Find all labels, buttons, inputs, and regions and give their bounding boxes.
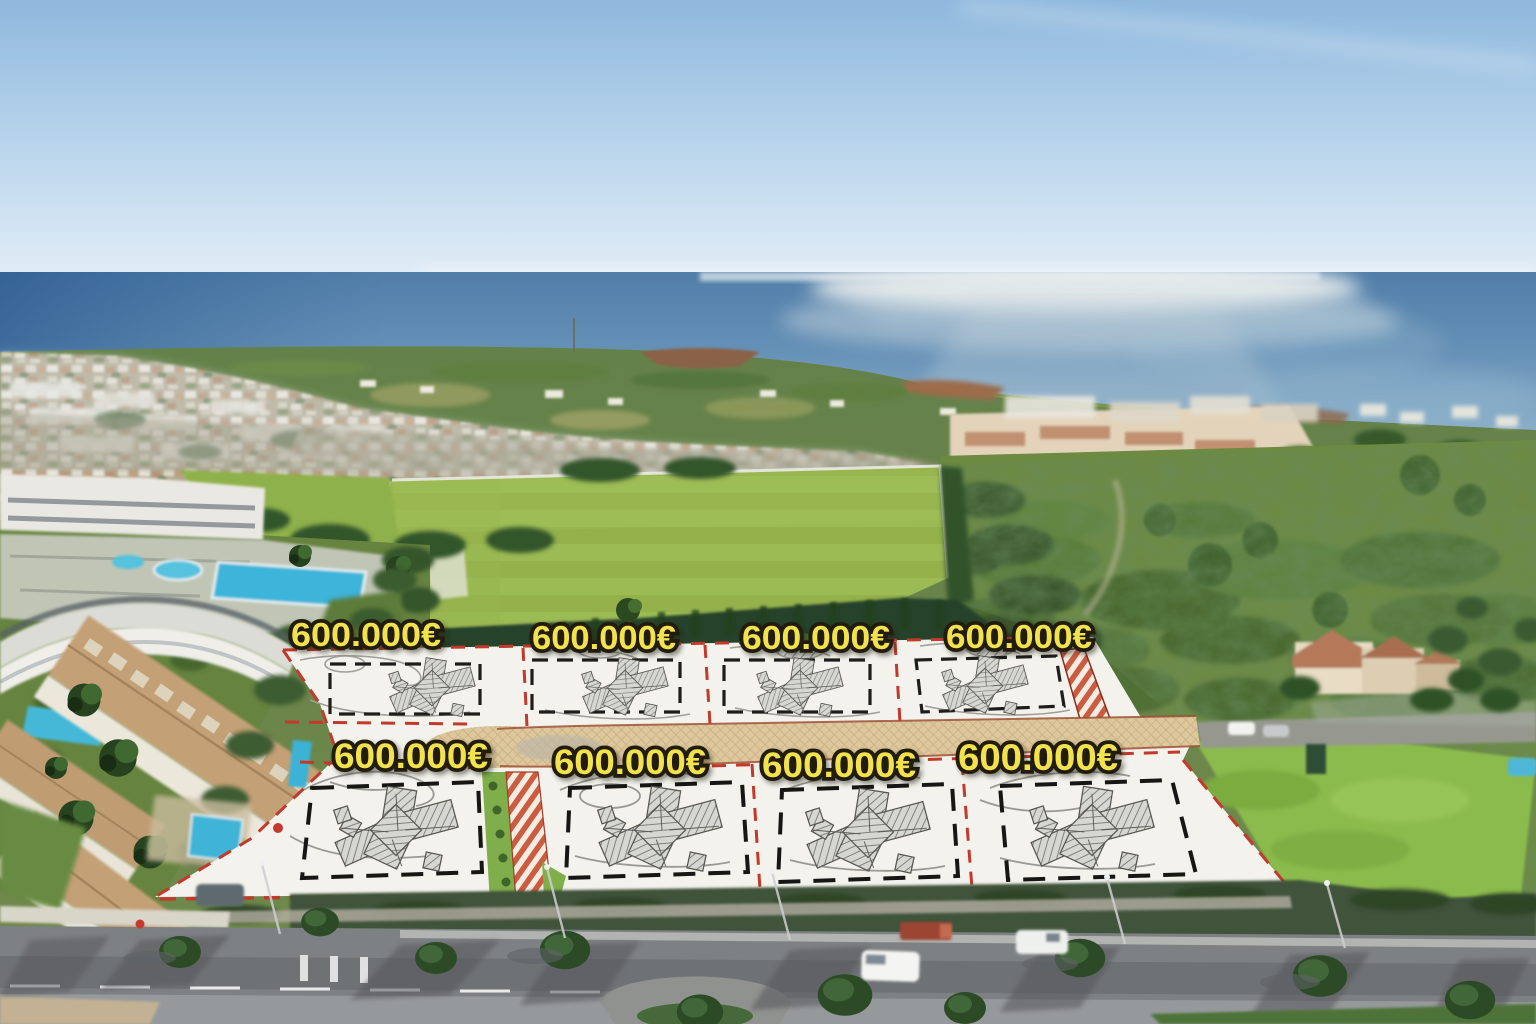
svg-text:600.000€: 600.000€	[554, 743, 706, 782]
svg-text:600.000€: 600.000€	[762, 746, 916, 785]
svg-text:600.000€: 600.000€	[532, 619, 676, 656]
svg-text:600.000€: 600.000€	[958, 737, 1118, 778]
svg-text:600.000€: 600.000€	[334, 737, 488, 776]
svg-text:600.000€: 600.000€	[946, 618, 1092, 655]
svg-text:600.000€: 600.000€	[742, 619, 890, 656]
svg-text:600.000€: 600.000€	[291, 616, 441, 653]
